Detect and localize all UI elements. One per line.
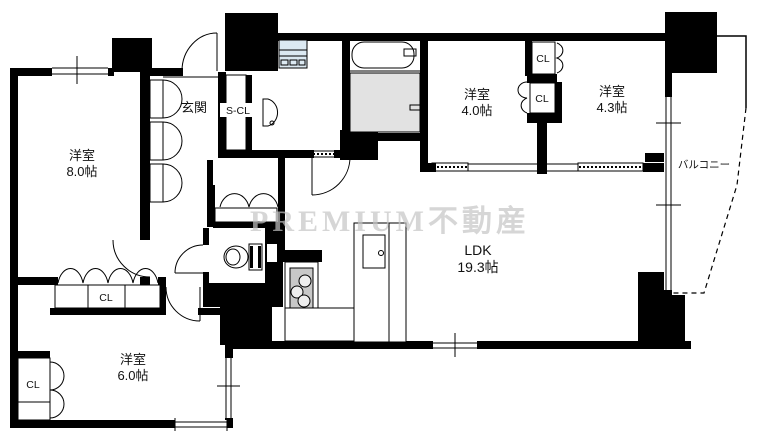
kitchen-counter xyxy=(285,262,358,341)
room6-door-arc xyxy=(166,287,200,321)
toilet-icon xyxy=(224,244,262,270)
watermark: PREMIUM不動産 xyxy=(250,205,530,238)
pillar xyxy=(225,13,278,71)
shower-floor xyxy=(350,73,420,132)
pillar xyxy=(112,38,152,72)
corridor-storage xyxy=(150,122,163,160)
room-label-west8-size: 8.0帖 xyxy=(66,164,97,179)
floor-plan-drawing: 洋室 8.0帖 玄関 S-CL 洋室 4.0帖 CL CL 洋室 4.3帖 LD… xyxy=(0,0,760,441)
window-balcony xyxy=(656,97,681,290)
pillar xyxy=(340,130,378,160)
room-label-ldk-name: LDK xyxy=(464,242,492,258)
room-label-balcony: バルコニー xyxy=(678,159,730,171)
washer-icon xyxy=(279,40,307,68)
label-closet-6: CL xyxy=(26,379,40,391)
bathtub-icon xyxy=(352,42,416,68)
window-room8-top xyxy=(52,56,108,84)
room-label-west43-name: 洋室 xyxy=(599,84,625,99)
floor-plan: 洋室 8.0帖 玄関 S-CL 洋室 4.0帖 CL CL 洋室 4.3帖 LD… xyxy=(0,0,760,441)
bifold-door-cl40 xyxy=(518,82,527,113)
sliding-partition-40 xyxy=(432,163,468,171)
window-room6-right xyxy=(217,358,240,418)
ldk-door-arc xyxy=(312,157,350,195)
pillar xyxy=(665,12,717,73)
bifold-door-cl6 xyxy=(50,362,64,418)
toilet-niche xyxy=(267,244,277,262)
room8-door-arc xyxy=(113,240,150,277)
window-ldk-bottom xyxy=(433,333,477,357)
label-closet-40: CL xyxy=(535,93,549,105)
corridor-storage xyxy=(150,164,163,202)
entrance-door-arc xyxy=(182,33,217,71)
washbasin-icon xyxy=(263,99,278,126)
room-label-west6-size: 6.0帖 xyxy=(117,368,148,383)
room-label-genkan: 玄関 xyxy=(181,100,207,115)
kitchen-cabinet xyxy=(354,223,406,342)
room-label-ldk-size: 19.3帖 xyxy=(457,259,498,275)
room-label-west8-name: 洋室 xyxy=(69,148,95,163)
label-closet-8: CL xyxy=(99,292,113,304)
bifold-door-cl43 xyxy=(557,43,563,73)
corridor-storage-doors xyxy=(163,80,182,202)
room-label-west43-size: 4.3帖 xyxy=(596,100,627,115)
room-label-west4-name: 洋室 xyxy=(464,87,490,102)
toilet-door-arc xyxy=(175,245,203,273)
label-shoe-closet: S-CL xyxy=(226,105,250,117)
room-label-west6-name: 洋室 xyxy=(120,352,146,367)
sliding-partition-43 xyxy=(578,163,643,171)
room-label-west4-size: 4.0帖 xyxy=(461,103,492,118)
label-closet-43: CL xyxy=(536,53,550,65)
window-room6-bottom xyxy=(175,418,227,431)
corridor-storage xyxy=(150,80,163,118)
